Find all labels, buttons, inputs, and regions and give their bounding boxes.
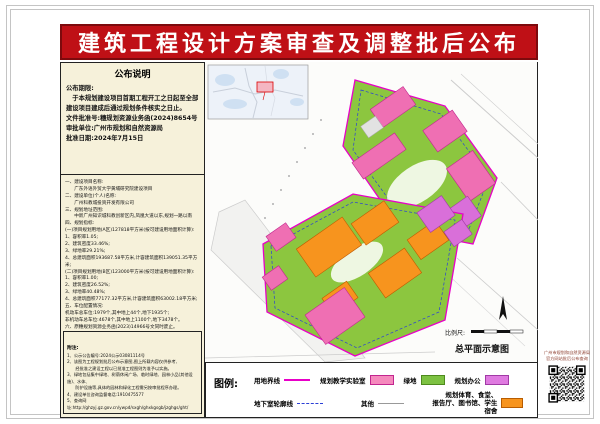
scale-label: 比例尺: [445,329,465,337]
announcement-poster: 建筑工程设计方案审查及调整批后公布 公布说明 公布期限: 于本规划建设项目首期工… [0,0,600,424]
legend-box: 图例: 用地界线 规划教学实验室 绿地 规划办公 地下室轮廓线 [205,362,538,418]
legend-title: 图例: [214,375,238,390]
site-plan-svg: 比例尺: 总平面示意图 [205,62,538,362]
legend-item-green-space: 绿地 [404,375,445,385]
legend-row-2: 地下室轮廓线 其他 规划体育、食堂、 报告厅、图书馆、学生宿舍 [254,393,533,413]
legend-item-site-boundary: 用地界线 [254,375,310,385]
orange-swatch [501,398,523,408]
qr-code [547,364,587,404]
legend-item-office: 规划办公 [455,375,509,385]
legend-item-other: 其他 [361,398,404,408]
blue-dashed-line-swatch [297,403,323,404]
announcement-panel: 公布说明 公布期限: 于本规划建设项目首期工程开工之日起至全部 建设项目建成后通… [60,62,205,418]
location-inset-map [208,65,308,119]
plan-caption: 总平面示意图 [455,343,509,355]
legend-item-teaching-lab: 规划教学实验室 [320,375,394,385]
scale-bar: 比例尺: [445,329,523,337]
notice-body: 公布期限: 于本规划建设项目首期工程开工之日起至全部 建设项目建成后通过规划条件… [66,84,199,144]
page-title-banner: 建筑工程设计方案审查及调整批后公布 [60,24,538,60]
qr-caption: 广州市规划和自然资源局 官方网站批后公布查询 [543,350,591,362]
street-trees [264,119,322,219]
green-swatch [421,375,445,385]
north-arrow-icon [499,296,507,320]
legend-row-1: 用地界线 规划教学实验室 绿地 规划办公 [254,371,533,389]
legend-item-basement-outline: 地下室轮廓线 [254,398,323,408]
pink-swatch [370,375,394,385]
violet-swatch [485,375,509,385]
notice-title: 公布说明 [66,67,199,80]
magenta-line-swatch [284,379,310,381]
gray-line-swatch [378,403,404,404]
footnote-body: 1、公示公告编号:2024公示03081114号 2、该图为工程规划批后公布示意… [67,353,198,412]
notice-box: 公布说明 公布期限: 于本规划建设项目首期工程开工之日起至全部 建设项目建成后通… [61,63,204,175]
legend-item-sports-canteen: 规划体育、食堂、 报告厅、图书馆、学生宿舍 [428,391,523,415]
footnote-title: 附注: [67,346,79,351]
site-plan-map: 比例尺: 总平面示意图 [205,62,538,362]
qr-block: 广州市规划和自然资源局 官方网站批后公布查询 [543,350,591,404]
project-details: 一、建设项目名称: 广东外语外贸大学黄埔研究院建设项目 二、建设单位(个人)名称… [61,177,204,335]
footnote-box: 附注: 1、公示公告编号:2024公示03081114号 2、该图为工程规划批后… [63,331,202,415]
page-title: 建筑工程设计方案审查及调整批后公布 [78,26,520,58]
